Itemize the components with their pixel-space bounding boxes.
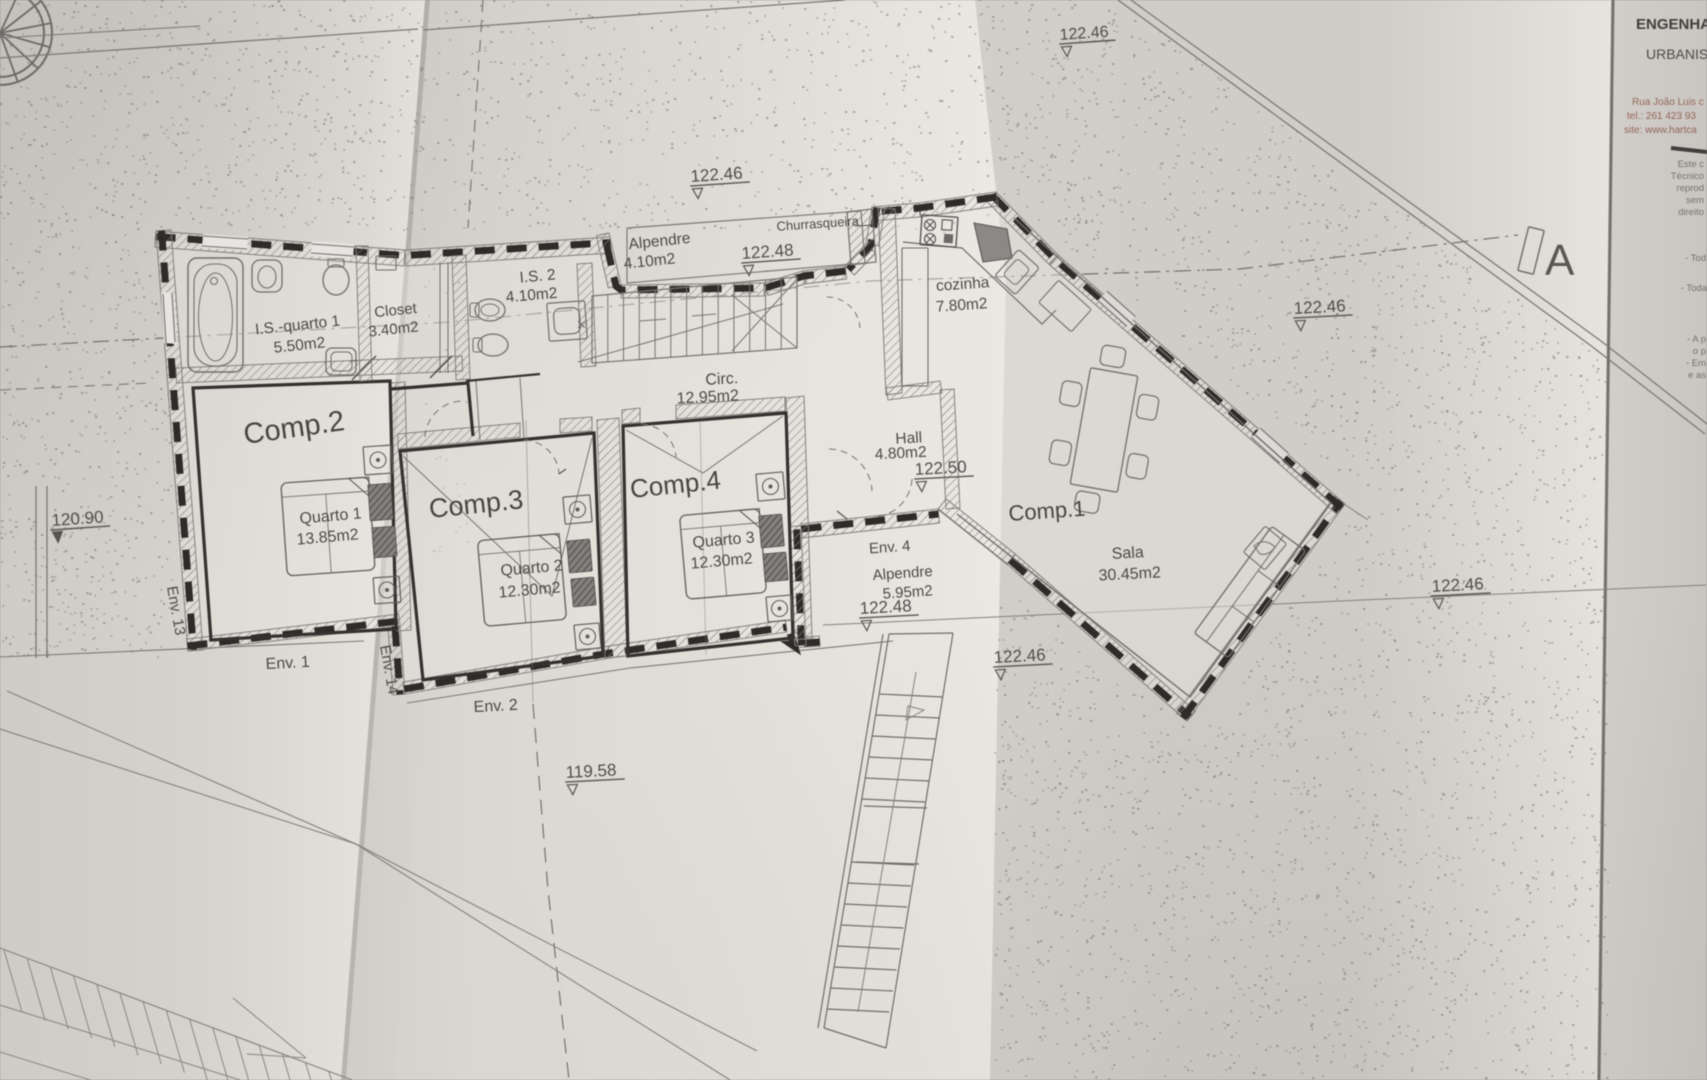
svg-text:reprod: reprod: [1677, 183, 1704, 194]
svg-text:- Toda: - Toda: [1681, 283, 1707, 294]
svg-text:direito: direito: [1678, 207, 1704, 218]
svg-text:122.46: 122.46: [993, 645, 1046, 667]
svg-text:Env. 1: Env. 1: [265, 654, 310, 673]
svg-text:119.58: 119.58: [565, 760, 617, 782]
svg-text:122.46: 122.46: [1431, 574, 1484, 596]
svg-text:site: www.hartca: site: www.hartca: [1624, 125, 1697, 136]
svg-text:Env. 4: Env. 4: [868, 538, 911, 558]
svg-text:122.48: 122.48: [859, 596, 912, 618]
svg-text:I.S. 2: I.S. 2: [519, 266, 557, 286]
svg-text:ENGENHA: ENGENHA: [1636, 16, 1707, 33]
svg-text:12.95m2: 12.95m2: [676, 387, 739, 407]
svg-text:Sala: Sala: [1111, 544, 1144, 563]
svg-text:tel.: 261 423 93: tel.: 261 423 93: [1627, 111, 1696, 122]
svg-text:- Tod: - Tod: [1685, 253, 1706, 264]
svg-text:Env. 2: Env. 2: [473, 697, 518, 716]
svg-text:URBANIS: URBANIS: [1646, 46, 1707, 62]
svg-text:122.46: 122.46: [1293, 296, 1346, 318]
svg-text:o p: o p: [1693, 346, 1706, 357]
svg-text:Rua João Luis c: Rua João Luis c: [1632, 97, 1704, 108]
svg-text:e as: e as: [1688, 370, 1706, 381]
svg-text:Técnico: Técnico: [1671, 171, 1704, 182]
svg-text:Este c: Este c: [1678, 159, 1705, 170]
svg-text:- A p: - A p: [1687, 334, 1706, 345]
svg-text:7.80m2: 7.80m2: [935, 295, 988, 316]
svg-text:30.45m2: 30.45m2: [1098, 564, 1161, 584]
svg-text:122.50: 122.50: [914, 457, 967, 479]
svg-text:A: A: [1545, 236, 1575, 285]
svg-text:Circ.: Circ.: [705, 370, 739, 389]
svg-text:- Em: - Em: [1686, 358, 1706, 369]
svg-text:sem: sem: [1686, 195, 1704, 206]
